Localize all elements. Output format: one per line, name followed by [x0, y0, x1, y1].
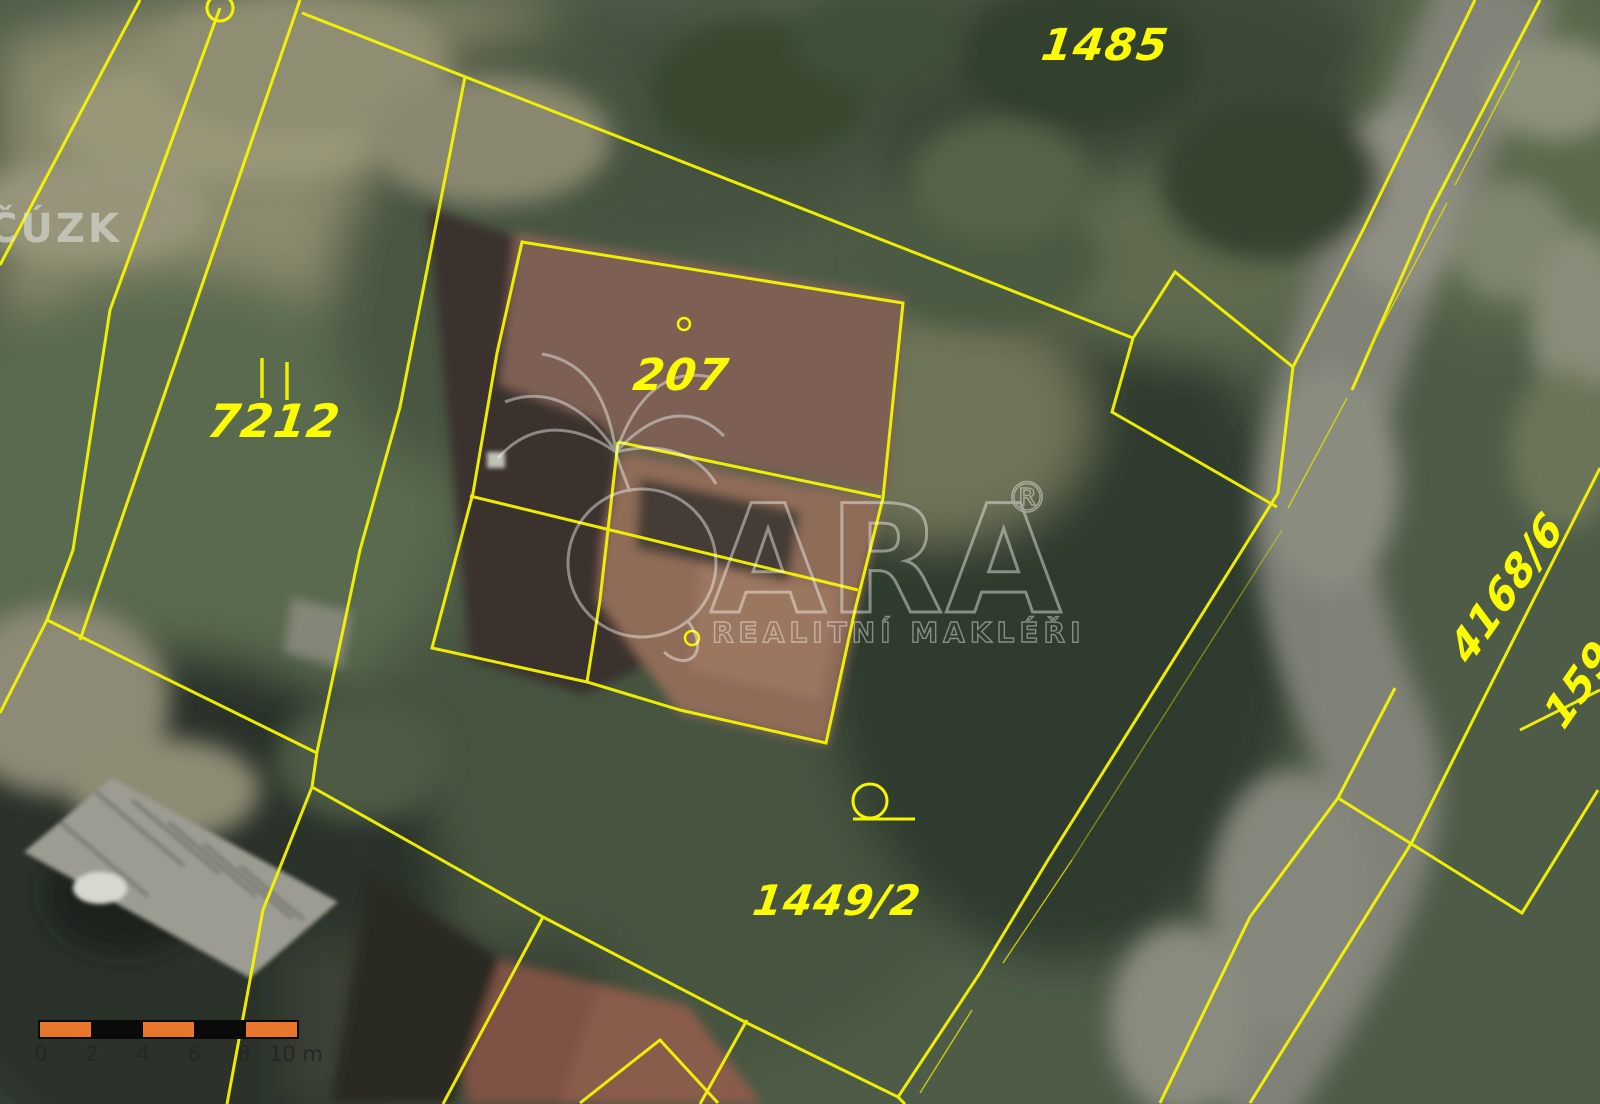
cuzk-provider-watermark: ČÚZK	[0, 206, 122, 252]
cadastral-map-viewport[interactable]: ARA ® REALITNÍ MAKLÉŘI ČÚZK 148572122071…	[0, 0, 1600, 1104]
scale-segment	[40, 1022, 91, 1037]
scale-label-4: 4	[136, 1042, 149, 1066]
scale-segment	[91, 1022, 142, 1037]
scale-label-2: 2	[85, 1042, 98, 1066]
scale-segment	[194, 1022, 245, 1037]
parcel-label-1449-2: 1449/2	[750, 880, 923, 922]
scale-label-8: 8	[237, 1042, 250, 1066]
scale-segment	[143, 1022, 194, 1037]
scale-label-10-m: 10 m	[269, 1042, 323, 1066]
scale-segment	[246, 1022, 297, 1037]
parcel-label-1485: 1485	[1039, 24, 1172, 68]
parcel-label-207: 207	[630, 354, 731, 398]
parcel-label-7212: 7212	[205, 398, 343, 444]
map-scale-bar	[38, 1020, 299, 1039]
scale-label-0: 0	[34, 1042, 47, 1066]
brand-tagline: REALITNÍ MAKLÉŘI	[712, 615, 1086, 649]
registered-trademark-icon: ®	[1006, 473, 1048, 522]
brand-watermark: ARA ® REALITNÍ MAKLÉŘI	[0, 0, 1600, 1104]
scale-label-6: 6	[187, 1042, 200, 1066]
